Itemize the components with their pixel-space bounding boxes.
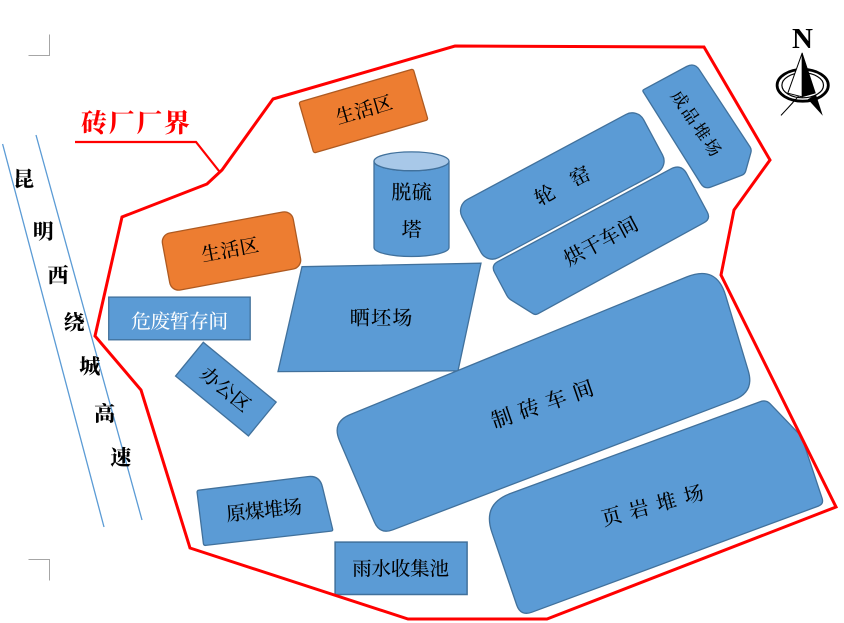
svg-text:N: N [792,23,813,55]
